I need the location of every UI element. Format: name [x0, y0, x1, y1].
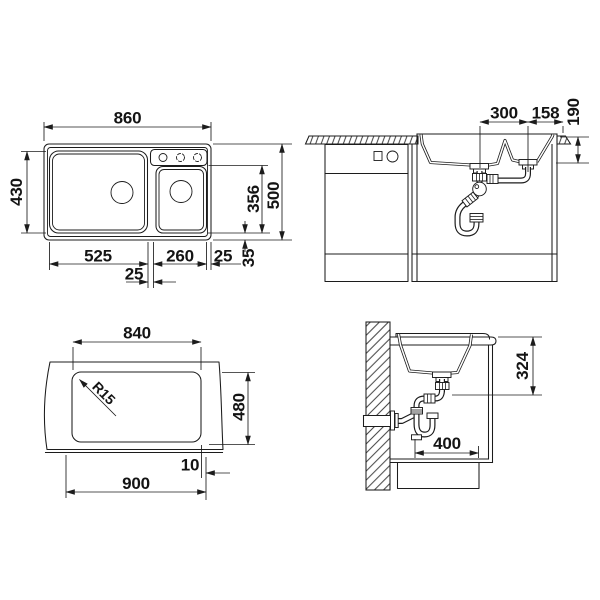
small-drain-icon	[170, 181, 192, 203]
dim-drain-to-edge: 158	[532, 104, 560, 123]
side-section-drawing: 324 400	[364, 322, 543, 490]
left-cabinet	[325, 145, 408, 282]
cutout-view-drawing: 840 R15 480 10 900	[44, 324, 255, 501]
small-bowl	[156, 167, 207, 234]
dim-corner-radius: R15	[89, 378, 119, 408]
dim-small-bowl-width: 260	[166, 247, 194, 266]
dim-overall-depth: 500	[264, 182, 283, 210]
worktop-slab	[44, 362, 223, 450]
countertop-section	[390, 337, 496, 345]
dim-overall-width: 860	[114, 109, 142, 128]
plinth	[398, 463, 480, 489]
dim-small-bowl-length: 356	[244, 185, 263, 213]
tap-hole-knockout-icon	[177, 154, 185, 162]
countertop-section	[306, 136, 419, 144]
dim-outlet-height: 324	[513, 351, 532, 380]
sink-rim	[396, 334, 490, 340]
tap-hole-icon	[159, 154, 167, 162]
cabinet-vent-icon	[374, 152, 382, 161]
wall-flange-icon	[391, 411, 395, 430]
dim-base-clearance: 400	[433, 434, 461, 453]
wall-section	[366, 322, 390, 490]
drain-plumbing	[458, 160, 538, 234]
top-view-drawing: 860 430 525 260 25 25 356 500	[7, 109, 292, 289]
sink-dimension-drawing: 860 430 525 260 25 25 356 500	[0, 0, 600, 600]
drain-plumbing	[391, 372, 452, 440]
dim-edge-offset: 10	[181, 456, 200, 475]
dim-drain-spacing: 300	[490, 104, 518, 123]
front-section-drawing: 300 158 190	[306, 98, 590, 281]
technical-drawing-page: 860 430 525 260 25 25 356 500	[0, 0, 600, 600]
tap-hole-knockout-icon	[194, 154, 202, 162]
dim-cutout-width: 840	[123, 324, 151, 343]
cabinet-knob-icon	[387, 151, 398, 162]
cutout-opening	[72, 372, 201, 442]
dim-bowl-depth: 190	[564, 98, 583, 126]
dim-outer-width: 900	[122, 474, 150, 493]
dim-cutout-depth: 480	[230, 393, 249, 421]
dim-bottom-edge: 35	[239, 249, 258, 268]
dim-divider-width: 25	[125, 265, 144, 284]
main-drain-icon	[111, 182, 133, 204]
sink-outline	[44, 144, 211, 240]
dim-right-edge: 25	[214, 247, 233, 266]
dim-main-bowl-depth: 430	[7, 178, 26, 206]
dim-main-bowl-width: 525	[84, 247, 112, 266]
